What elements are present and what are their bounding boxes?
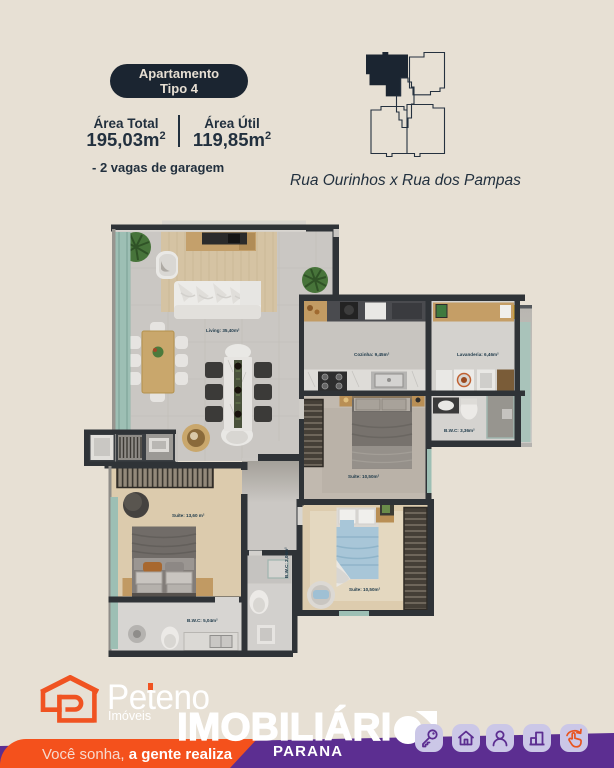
svg-text:B.W.C: 5,04m²: B.W.C: 5,04m² [187,618,218,623]
svg-text:Suíte: 10,50m²: Suíte: 10,50m² [349,587,381,592]
svg-text:Living: 35,40m²: Living: 35,40m² [206,328,240,333]
svg-text:B.W.C: 3,36m²: B.W.C: 3,36m² [444,428,475,433]
svg-text:Lavanderia: 6,46m²: Lavanderia: 6,46m² [457,352,499,357]
svg-text:Cozinha: 9,45m²: Cozinha: 9,45m² [354,352,390,357]
svg-text:B.W.C: 2,06m²: B.W.C: 2,06m² [284,547,289,578]
svg-text:Suíte: 13,60 m²: Suíte: 13,60 m² [172,513,205,518]
svg-text:Suíte: 10,50m²: Suíte: 10,50m² [348,474,380,479]
